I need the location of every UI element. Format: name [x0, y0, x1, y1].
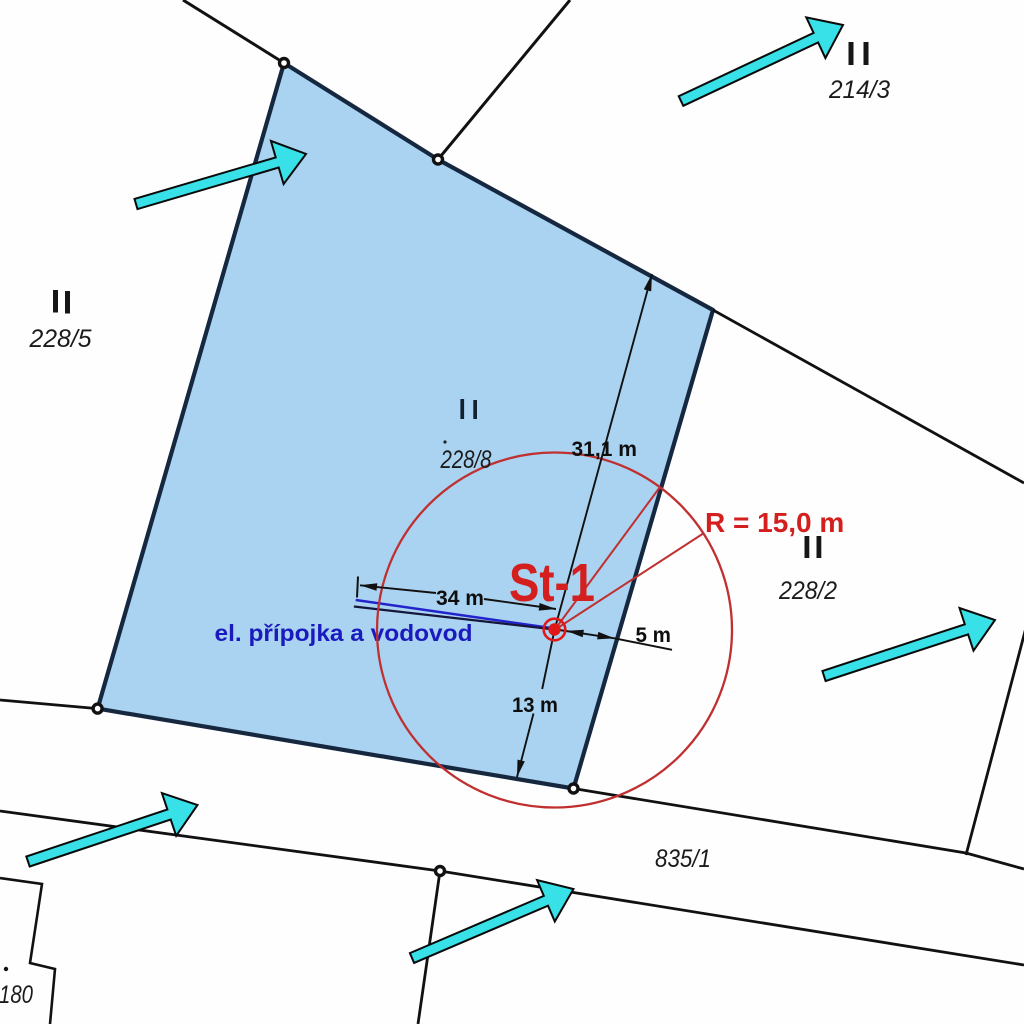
svg-text:835/1: 835/1 [655, 845, 711, 873]
svg-text:St-1: St-1 [509, 553, 595, 613]
svg-text:228/5: 228/5 [29, 325, 92, 353]
svg-text:180: 180 [0, 981, 33, 1009]
svg-text:214/3: 214/3 [828, 76, 890, 104]
svg-text:13 m: 13 m [512, 694, 558, 717]
svg-text:R = 15,0 m: R = 15,0 m [705, 507, 844, 538]
svg-text:31,1 m: 31,1 m [572, 438, 637, 461]
svg-text:5 m: 5 m [636, 624, 672, 647]
svg-text:34 m: 34 m [436, 587, 484, 610]
svg-text:el. přípojka a vodovod: el. přípojka a vodovod [215, 620, 473, 646]
svg-text:228/2: 228/2 [778, 577, 837, 605]
svg-text:228/8: 228/8 [440, 446, 492, 474]
